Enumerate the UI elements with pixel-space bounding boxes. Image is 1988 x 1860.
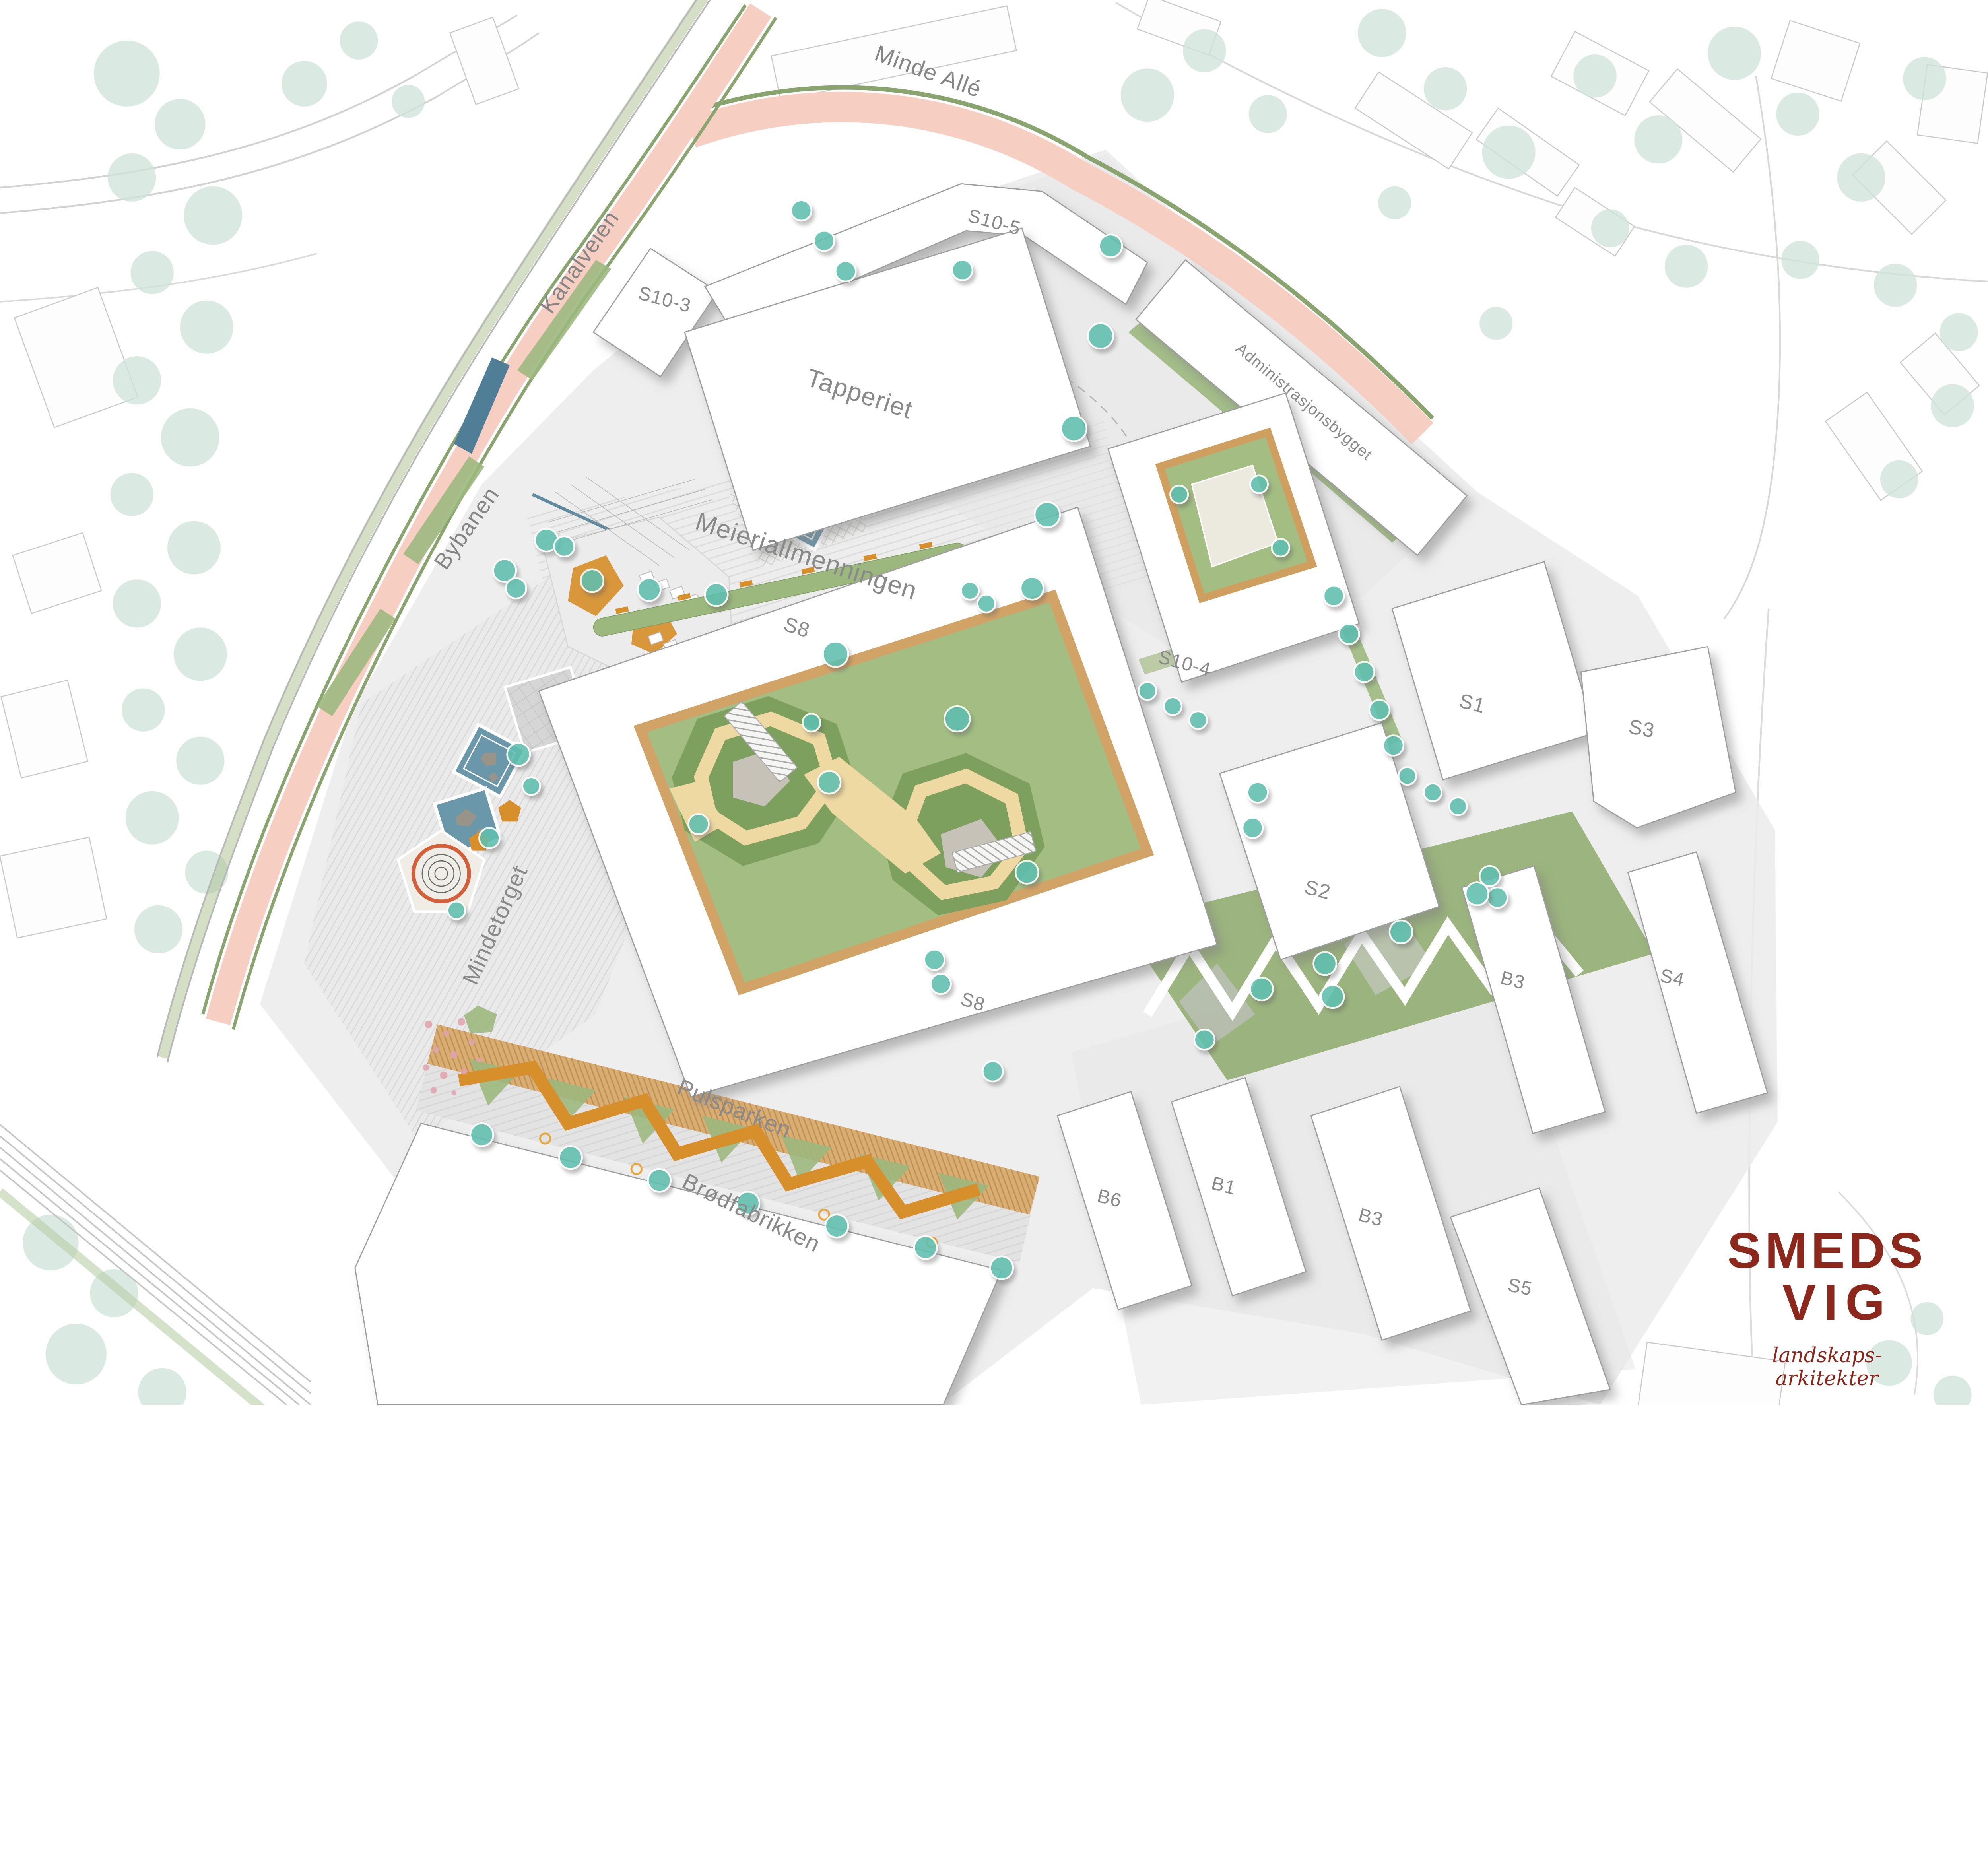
tree xyxy=(506,578,526,598)
label-s5: S5 xyxy=(1506,1274,1534,1300)
background-tree xyxy=(184,186,242,245)
blossom-tree xyxy=(423,1064,429,1071)
tree xyxy=(522,777,540,795)
background-tree xyxy=(138,1368,186,1405)
background-tree xyxy=(1249,95,1287,133)
blossom-tree xyxy=(458,1018,465,1026)
blossom-tree xyxy=(450,1051,458,1058)
background-tree xyxy=(126,791,179,845)
tree xyxy=(990,1256,1013,1279)
tree xyxy=(1383,735,1404,755)
tree xyxy=(689,814,709,834)
tree xyxy=(638,578,660,601)
background-tree xyxy=(1940,313,1978,351)
tree xyxy=(1099,235,1122,257)
tree xyxy=(554,536,574,557)
tree xyxy=(580,569,603,592)
tree xyxy=(978,595,996,613)
background-tree xyxy=(1358,9,1406,57)
tree xyxy=(835,261,856,282)
tree xyxy=(818,771,841,794)
tree xyxy=(945,706,970,732)
blossom-tree xyxy=(431,1087,437,1093)
background-tree xyxy=(130,251,173,294)
logo-word-smeds: SMEDS xyxy=(1698,1225,1956,1277)
tree xyxy=(823,642,848,667)
tree xyxy=(982,1061,1003,1081)
tree xyxy=(1170,485,1188,503)
tree xyxy=(1390,920,1412,943)
tree xyxy=(1164,697,1182,715)
blossom-tree xyxy=(425,1021,432,1028)
background-tree xyxy=(1573,54,1616,97)
background-tree xyxy=(340,21,378,60)
tree xyxy=(1088,323,1113,349)
tree xyxy=(1466,882,1488,905)
tree xyxy=(931,974,951,994)
background-tree xyxy=(180,301,233,354)
background-tree xyxy=(134,905,182,953)
tree xyxy=(1324,586,1344,606)
tree xyxy=(1272,539,1289,557)
background-tree xyxy=(1776,93,1819,136)
background-tree xyxy=(1708,27,1761,80)
background-tree xyxy=(122,689,165,732)
tree xyxy=(1314,952,1336,975)
background-tree xyxy=(1479,307,1512,340)
tree xyxy=(1250,978,1273,1000)
background-tree xyxy=(167,521,221,575)
background-tree xyxy=(108,153,156,202)
background-tree xyxy=(1903,57,1946,100)
background-tree xyxy=(110,473,153,516)
tree xyxy=(914,1236,937,1259)
blossom-tree xyxy=(443,1030,449,1037)
background-tree xyxy=(282,61,327,107)
background-tree xyxy=(1874,264,1917,307)
tree xyxy=(791,200,812,221)
tree xyxy=(479,828,499,848)
background-tree xyxy=(1482,126,1536,179)
site-plan-page: Minde AlléKanalveienBybanenS10-5S10-3Tap… xyxy=(0,0,1988,1405)
tree xyxy=(1194,1029,1215,1050)
tree xyxy=(1339,624,1359,644)
background-tree xyxy=(392,85,425,118)
tree xyxy=(1369,700,1390,720)
logo-word-vig: VIG xyxy=(1718,1277,1956,1328)
tree xyxy=(1487,887,1507,908)
background-tree xyxy=(176,737,224,785)
tree xyxy=(1424,784,1442,802)
background-tree xyxy=(1591,209,1629,247)
background-tree xyxy=(1378,186,1411,219)
building-s3 xyxy=(1581,647,1736,828)
tree xyxy=(1321,985,1344,1008)
tree xyxy=(952,260,973,280)
background-tree xyxy=(1931,384,1974,427)
tree xyxy=(1021,577,1043,600)
tree xyxy=(648,1169,670,1192)
tree xyxy=(814,231,834,251)
background-tree xyxy=(46,1324,107,1384)
blossom-tree xyxy=(433,1046,439,1053)
logo-tagline-2: arkitekter xyxy=(1698,1367,1956,1391)
background-tree xyxy=(1121,68,1174,122)
blossom-tree xyxy=(468,1039,475,1045)
tree xyxy=(1398,767,1416,785)
logo-tagline-1: landskaps- xyxy=(1698,1344,1956,1368)
background-tree xyxy=(161,408,219,467)
background-tree xyxy=(155,99,206,150)
tree xyxy=(1061,416,1087,441)
tree xyxy=(448,901,466,919)
tree xyxy=(1035,502,1060,528)
background-tree xyxy=(1183,29,1226,72)
tree xyxy=(961,582,979,600)
tree xyxy=(1248,782,1268,802)
tree xyxy=(1242,818,1263,838)
tree xyxy=(1449,798,1467,815)
site-plan-drawing: Minde AlléKanalveienBybanenS10-5S10-3Tap… xyxy=(0,0,1988,1405)
tree xyxy=(1139,682,1157,700)
background-tree xyxy=(113,356,161,404)
background-tree xyxy=(113,579,161,627)
logo-smedsvig: SMEDS VIG landskaps- arkitekter xyxy=(1698,1225,1956,1391)
background-tree xyxy=(1781,241,1819,279)
background-tree xyxy=(1665,245,1708,287)
tree xyxy=(1250,476,1268,493)
tree xyxy=(802,714,820,732)
tree xyxy=(470,1123,493,1146)
tree xyxy=(1015,861,1038,883)
blossom-tree xyxy=(451,1090,456,1095)
background-tree xyxy=(94,41,160,107)
blossom-tree xyxy=(440,1072,448,1079)
blossom-tree xyxy=(477,1057,482,1062)
tree xyxy=(1354,662,1375,682)
blossom-tree xyxy=(461,1068,467,1075)
background-tree xyxy=(174,627,227,681)
label-s3: S3 xyxy=(1627,715,1656,742)
background-tree xyxy=(1880,460,1918,499)
tree xyxy=(1189,711,1207,729)
background-tree xyxy=(1424,67,1467,110)
background-tree xyxy=(1634,115,1682,163)
tree xyxy=(507,743,530,766)
tree xyxy=(559,1146,582,1169)
background-tree xyxy=(1837,153,1885,202)
tree xyxy=(705,583,728,606)
tree xyxy=(924,949,945,970)
tree xyxy=(825,1215,848,1237)
